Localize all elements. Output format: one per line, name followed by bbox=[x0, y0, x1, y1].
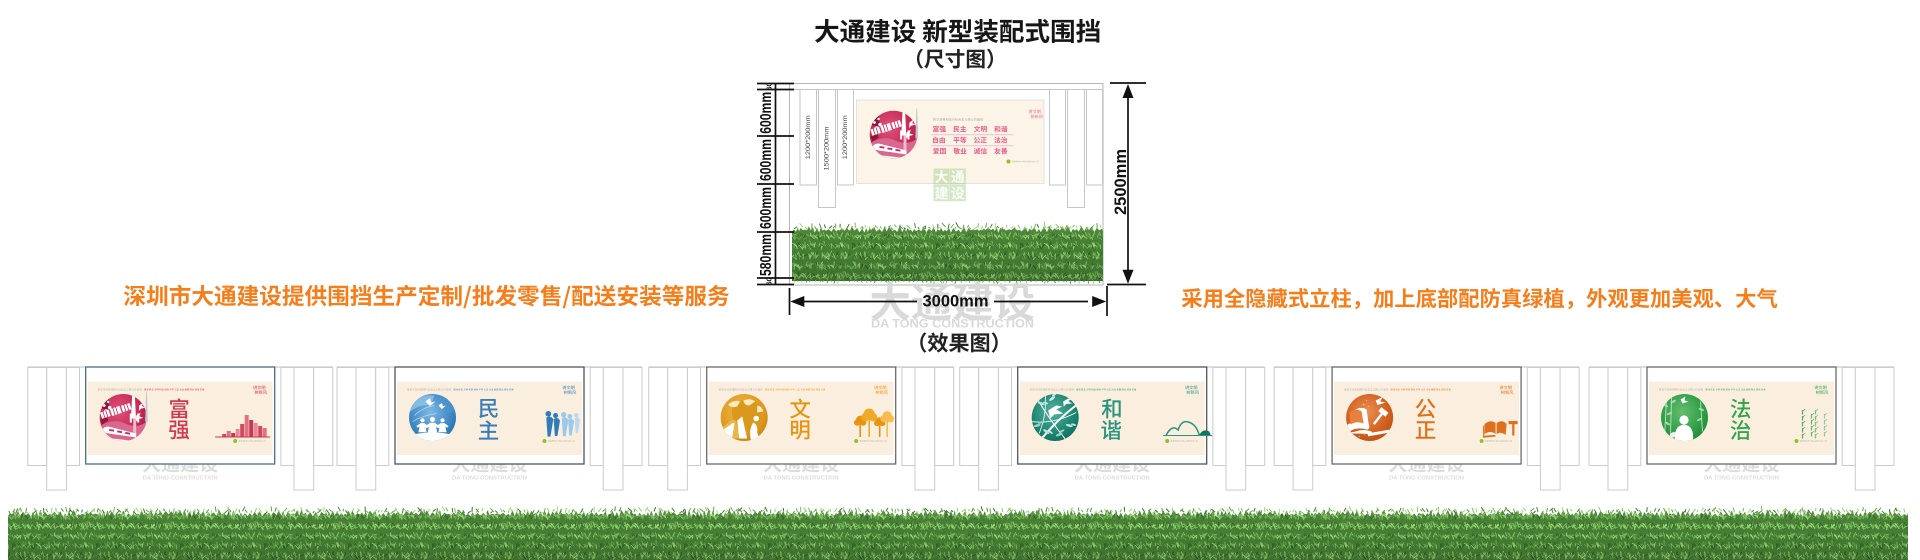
svg-text:600mm: 600mm bbox=[758, 139, 775, 181]
svg-text:DA TONG CONSTRUCTION: DA TONG CONSTRUCTION bbox=[1075, 476, 1150, 482]
svg-text:1200*200mm: 1200*200mm bbox=[805, 115, 812, 159]
svg-text:DA TONG CONSTRUCTION: DA TONG CONSTRUCTION bbox=[1704, 476, 1779, 482]
svg-text:580mm: 580mm bbox=[758, 234, 775, 276]
svg-text:600mm: 600mm bbox=[758, 187, 775, 229]
svg-text:60: 60 bbox=[767, 83, 774, 91]
svg-text:3000mm: 3000mm bbox=[922, 293, 988, 311]
svg-text:60: 60 bbox=[767, 277, 774, 285]
svg-text:1200*200mm: 1200*200mm bbox=[842, 115, 849, 159]
svg-text:DA TONG CONSTRUCTION: DA TONG CONSTRUCTION bbox=[143, 476, 218, 482]
svg-text:1500*200mm: 1500*200mm bbox=[824, 126, 831, 170]
svg-text:DA TONG CONSTRUCTION: DA TONG CONSTRUCTION bbox=[1389, 476, 1464, 482]
svg-text:DA TONG CONSTRUCTION: DA TONG CONSTRUCTION bbox=[452, 476, 527, 482]
svg-text:DA TONG CONSTRUCTION: DA TONG CONSTRUCTION bbox=[764, 476, 839, 482]
svg-text:600mm: 600mm bbox=[758, 92, 775, 134]
svg-text:DA TONG CONSTRUCTION: DA TONG CONSTRUCTION bbox=[871, 319, 1034, 331]
svg-text:2500mm: 2500mm bbox=[1112, 149, 1130, 215]
